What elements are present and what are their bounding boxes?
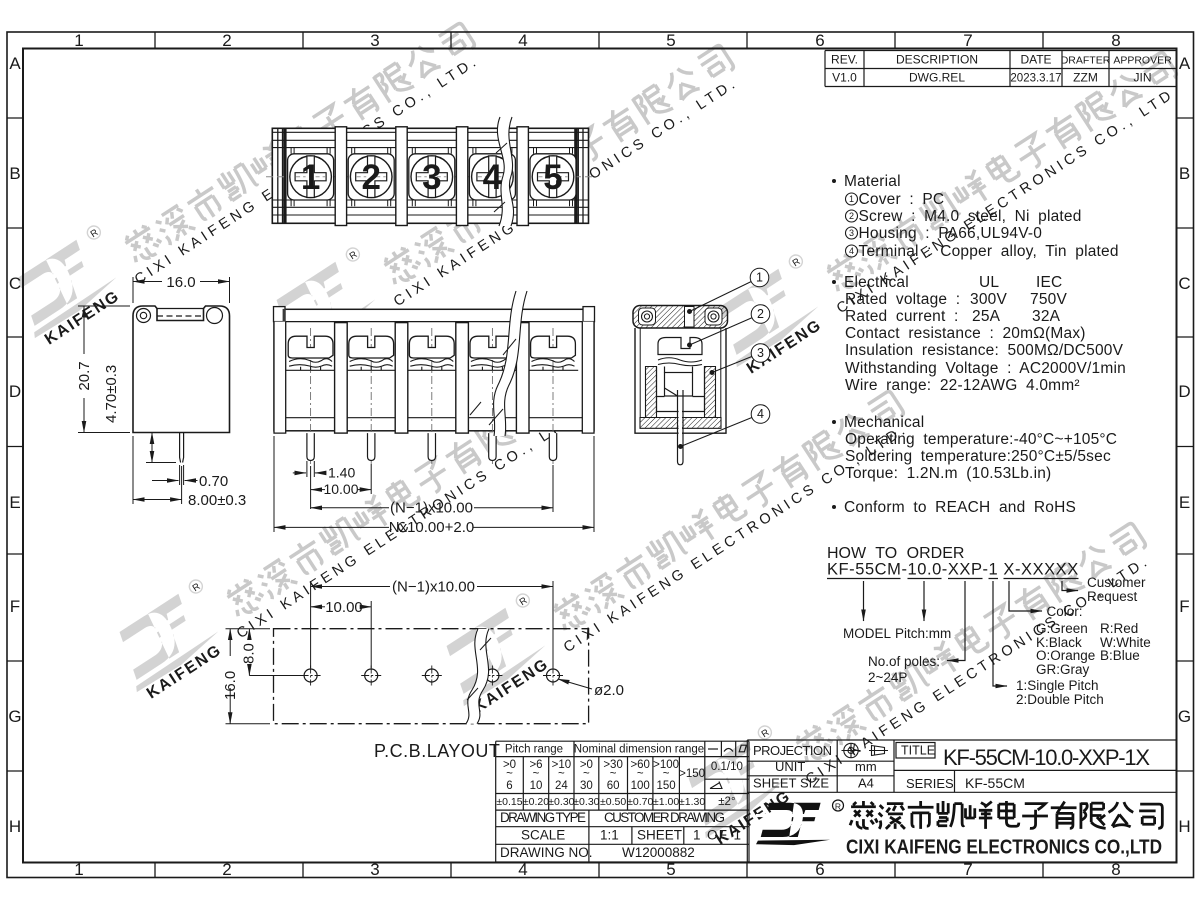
svg-text:60: 60 [607,780,620,792]
svg-text:8.00±0.3: 8.00±0.3 [188,492,246,509]
svg-text:~: ~ [506,768,513,780]
svg-text:±0.15: ±0.15 [496,796,522,808]
svg-text:100: 100 [631,780,650,792]
svg-text:DATE: DATE [1020,53,1051,67]
svg-text:±0.70: ±0.70 [627,796,653,808]
svg-text:B: B [1179,164,1190,183]
svg-text:0.70: 0.70 [199,473,228,490]
svg-text:Material: Material [844,173,901,190]
svg-text:GR:Gray: GR:Gray [1036,662,1090,677]
svg-text:A: A [1179,54,1191,73]
svg-text:2: 2 [757,307,764,321]
svg-text:REV.: REV. [831,53,858,67]
svg-text:ø2.0: ø2.0 [594,682,624,699]
svg-text:ZZM: ZZM [1073,71,1098,85]
svg-text:UNIT: UNIT [775,759,805,774]
svg-text:F: F [1179,597,1189,616]
svg-text:25A: 25A [972,308,1001,325]
svg-text:Housing : PA66,UL94V-0: Housing : PA66,UL94V-0 [859,225,1043,242]
svg-text:(N−1)x10.00: (N−1)x10.00 [390,500,473,517]
svg-text:1:Single Pitch: 1:Single Pitch [1016,678,1099,693]
svg-text:UL: UL [979,274,999,291]
svg-text:7: 7 [963,31,972,50]
svg-text:~: ~ [637,768,644,780]
svg-text:C: C [1178,274,1190,293]
svg-text:±0.50: ±0.50 [600,796,626,808]
svg-text:1: 1 [849,194,854,204]
svg-text:DRAWING NO.: DRAWING NO. [500,845,593,860]
svg-text:O:Orange: O:Orange [1036,648,1095,663]
svg-text:Customer: Customer [1087,575,1146,590]
svg-text:2: 2 [361,158,380,197]
svg-text:W12000882: W12000882 [622,845,695,860]
svg-text:SHEET SIZE: SHEET SIZE [753,776,829,791]
svg-text:1:1: 1:1 [600,828,619,843]
svg-text:Withstanding Voltage : AC2000V: Withstanding Voltage : AC2000V/1min [845,360,1126,377]
svg-text:10.00: 10.00 [323,481,358,497]
svg-text:B: B [9,164,20,183]
svg-text:±0.30: ±0.30 [548,796,574,808]
svg-text:Request: Request [1087,589,1138,604]
svg-text:Terminal : Copper alloy, Tin p: Terminal : Copper alloy, Tin plated [859,243,1119,260]
svg-text:Color:: Color: [1047,604,1083,619]
svg-text:150: 150 [657,780,676,792]
svg-text:SHEET: SHEET [637,828,682,843]
svg-text:1: 1 [74,31,83,50]
svg-text:1: 1 [301,158,320,197]
svg-text:±2°: ±2° [718,796,735,808]
svg-text:SERIES: SERIES [906,776,954,791]
svg-text:HOW TO ORDER: HOW TO ORDER [827,545,964,562]
svg-text:IEC: IEC [1036,274,1062,291]
svg-text:DRAWING TYPE: DRAWING TYPE [500,810,586,825]
svg-text:±0.20: ±0.20 [523,796,549,808]
svg-text:E: E [9,493,20,512]
svg-text:1: 1 [74,860,83,879]
svg-text:Soldering temperature:250°C±5/: Soldering temperature:250°C±5/5sec [845,448,1111,465]
svg-text:H: H [1178,817,1190,836]
svg-text:V1.0: V1.0 [832,71,857,85]
svg-text:6: 6 [815,31,824,50]
svg-text:10: 10 [530,780,543,792]
svg-text:Wire range: 22-12AWG 4.0mm²: Wire range: 22-12AWG 4.0mm² [845,377,1080,394]
svg-text:3: 3 [370,860,379,879]
svg-text:>150: >150 [679,768,705,780]
svg-text:mm: mm [855,759,877,774]
svg-text:Torque: 1.2N.m (10.53Lb.in): Torque: 1.2N.m (10.53Lb.in) [845,465,1051,482]
svg-text:MODEL: MODEL [843,626,892,641]
svg-text:5: 5 [666,860,675,879]
svg-text:300V: 300V [970,291,1007,308]
svg-text:3: 3 [370,31,379,50]
svg-text:KF-55CM-10.0-XXP-1X: KF-55CM-10.0-XXP-1X [943,745,1150,770]
svg-text:20.7: 20.7 [76,361,93,390]
svg-text:1: 1 [756,271,763,285]
svg-text:8: 8 [1111,860,1120,879]
svg-text:DRAFTER: DRAFTER [1061,55,1111,67]
svg-text:E: E [1179,493,1190,512]
svg-text:2: 2 [222,31,231,50]
svg-text:3: 3 [422,158,441,197]
svg-text:(N−1)x10.00: (N−1)x10.00 [392,579,475,596]
svg-text:Nominal dimension range: Nominal dimension range [574,744,704,756]
svg-text:~: ~ [583,768,590,780]
svg-text:6: 6 [815,860,824,879]
svg-text:TITLE: TITLE [901,744,935,758]
svg-text:Pitch range: Pitch range [505,744,563,756]
svg-text:4: 4 [757,407,764,421]
svg-text:32A: 32A [1032,308,1061,325]
svg-text:C: C [9,274,21,293]
svg-text:8.0: 8.0 [241,643,258,664]
svg-text:30: 30 [580,780,593,792]
svg-text:JIN: JIN [1134,71,1152,85]
svg-text:0.1/10: 0.1/10 [711,761,743,773]
svg-text:4.70±0.3: 4.70±0.3 [103,365,120,423]
svg-text:Contact resistance : 20mΩ(Max): Contact resistance : 20mΩ(Max) [845,325,1086,342]
svg-text:PROJECTION: PROJECTION [753,743,832,758]
svg-text:4: 4 [518,31,527,50]
svg-text:7: 7 [963,860,972,879]
svg-text:Electrical: Electrical [844,274,909,291]
svg-text:5: 5 [543,158,562,197]
svg-text:R:Red: R:Red [1100,621,1138,636]
svg-text:A4: A4 [858,776,874,791]
svg-text:~: ~ [533,768,540,780]
svg-text:8: 8 [1111,31,1120,50]
svg-text:5: 5 [666,31,675,50]
svg-text:KF-55CM-10.0-XXP-1 X-XXXXX: KF-55CM-10.0-XXP-1 X-XXXXX [827,561,1079,579]
svg-text:~: ~ [610,768,617,780]
svg-text:2023.3.17: 2023.3.17 [1010,73,1061,85]
svg-text:3: 3 [757,346,764,360]
svg-text:H: H [9,817,21,836]
svg-text:Mechanical: Mechanical [844,414,924,431]
svg-text:D: D [1178,382,1190,401]
svg-text:Conform to REACH and RoHS: Conform to REACH and RoHS [844,499,1076,516]
svg-text:±0.30: ±0.30 [573,796,599,808]
svg-text:D: D [9,382,21,401]
svg-text:CIXI KAIFENG ELECTRONICS CO.,L: CIXI KAIFENG ELECTRONICS CO.,LTD [846,836,1162,859]
svg-text:CUSTOMER DRAWING: CUSTOMER DRAWING [604,810,725,825]
svg-text:±1.00: ±1.00 [653,796,679,808]
svg-text:Insulation resistance: 500MΩ/D: Insulation resistance: 500MΩ/DC500V [845,342,1124,359]
svg-text:DESCRIPTION: DESCRIPTION [896,53,978,67]
svg-text:16.0: 16.0 [222,671,239,700]
svg-text:G:Green: G:Green [1036,621,1088,636]
svg-text:4: 4 [483,158,503,197]
svg-text:F: F [10,597,20,616]
svg-text:KF-55CM: KF-55CM [965,775,1025,791]
svg-text:DWG.REL: DWG.REL [909,71,965,85]
svg-text:Cover : PC: Cover : PC [859,191,945,208]
svg-text:10.00: 10.00 [325,599,363,616]
svg-text:APPROVER: APPROVER [1113,55,1172,67]
svg-text:No.of poles:: No.of poles: [868,654,940,669]
svg-text:R: R [835,801,841,811]
svg-text:Screw : M4.0 steel, Ni plated: Screw : M4.0 steel, Ni plated [859,208,1082,225]
svg-text:1.40: 1.40 [328,465,355,481]
svg-text:16.0: 16.0 [166,274,195,291]
svg-text:~: ~ [663,768,670,780]
svg-text:2: 2 [222,860,231,879]
svg-text:4: 4 [849,246,854,256]
svg-text:B:Blue: B:Blue [1100,648,1140,663]
svg-text:Nx10.00+2.0: Nx10.00+2.0 [389,519,474,536]
svg-text:750V: 750V [1030,291,1067,308]
svg-text:1 OF 1: 1 OF 1 [693,828,741,843]
svg-text:Operating temperature:-40°C~+1: Operating temperature:-40°C~+105°C [845,431,1117,448]
svg-text:3: 3 [849,228,854,238]
svg-text:4: 4 [518,860,527,879]
svg-text:SCALE: SCALE [521,828,565,843]
svg-text:2:Double Pitch: 2:Double Pitch [1016,692,1104,707]
svg-text:±1.30: ±1.30 [679,796,705,808]
svg-text:24: 24 [555,780,568,792]
svg-text:2~24P: 2~24P [868,670,907,685]
svg-text:P.C.B.LAYOUT: P.C.B.LAYOUT [374,741,500,761]
svg-text:2: 2 [849,211,854,221]
svg-text:~: ~ [558,768,565,780]
svg-text:6: 6 [506,780,512,792]
svg-text:G: G [1178,707,1191,726]
svg-text:G: G [8,707,21,726]
svg-text:A: A [9,54,21,73]
svg-text:Rated voltage :: Rated voltage : [845,291,960,308]
svg-text:Rated current :: Rated current : [845,308,959,325]
svg-text:Pitch:mm: Pitch:mm [895,626,951,641]
